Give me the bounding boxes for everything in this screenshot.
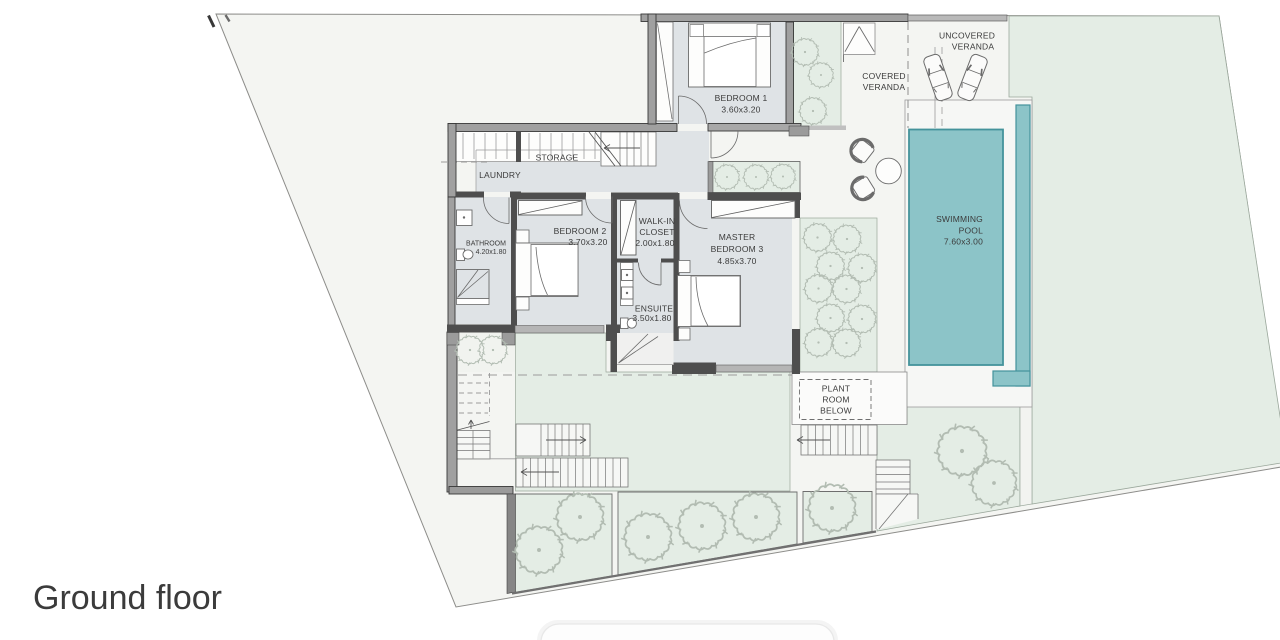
svg-text:3.60x3.20: 3.60x3.20 <box>721 105 760 115</box>
svg-text:3.50x1.80: 3.50x1.80 <box>632 313 671 323</box>
svg-text:2.00x1.80: 2.00x1.80 <box>635 238 674 248</box>
svg-text:COVERED: COVERED <box>862 71 905 81</box>
svg-text:SWIMMING: SWIMMING <box>936 214 983 224</box>
svg-text:VERANDA: VERANDA <box>952 42 995 52</box>
svg-text:ROOM: ROOM <box>822 395 849 405</box>
svg-text:4.85x3.70: 4.85x3.70 <box>717 256 756 266</box>
svg-text:UNCOVERED: UNCOVERED <box>939 31 995 41</box>
svg-text:3.70x3.20: 3.70x3.20 <box>568 237 607 247</box>
svg-text:BATHROOM: BATHROOM <box>466 241 506 248</box>
svg-text:ENSUITE: ENSUITE <box>635 304 673 314</box>
svg-text:BEDROOM 3: BEDROOM 3 <box>711 244 764 254</box>
svg-text:WALK-IN: WALK-IN <box>639 216 676 226</box>
svg-text:LAUNDRY: LAUNDRY <box>479 170 521 180</box>
svg-text:VERANDA: VERANDA <box>863 82 906 92</box>
svg-text:CLOSET: CLOSET <box>639 227 674 237</box>
svg-text:STORAGE: STORAGE <box>536 153 579 163</box>
svg-text:4.20x1.80: 4.20x1.80 <box>476 249 507 256</box>
svg-text:Ground floor: Ground floor <box>33 579 222 617</box>
svg-text:7.60x3.00: 7.60x3.00 <box>944 237 983 247</box>
svg-text:PLANT: PLANT <box>822 384 850 394</box>
svg-text:BEDROOM 1: BEDROOM 1 <box>715 93 768 103</box>
svg-text:MASTER: MASTER <box>719 232 756 242</box>
svg-text:BELOW: BELOW <box>820 406 852 416</box>
svg-text:POOL: POOL <box>959 226 983 236</box>
svg-text:BEDROOM 2: BEDROOM 2 <box>554 226 607 236</box>
